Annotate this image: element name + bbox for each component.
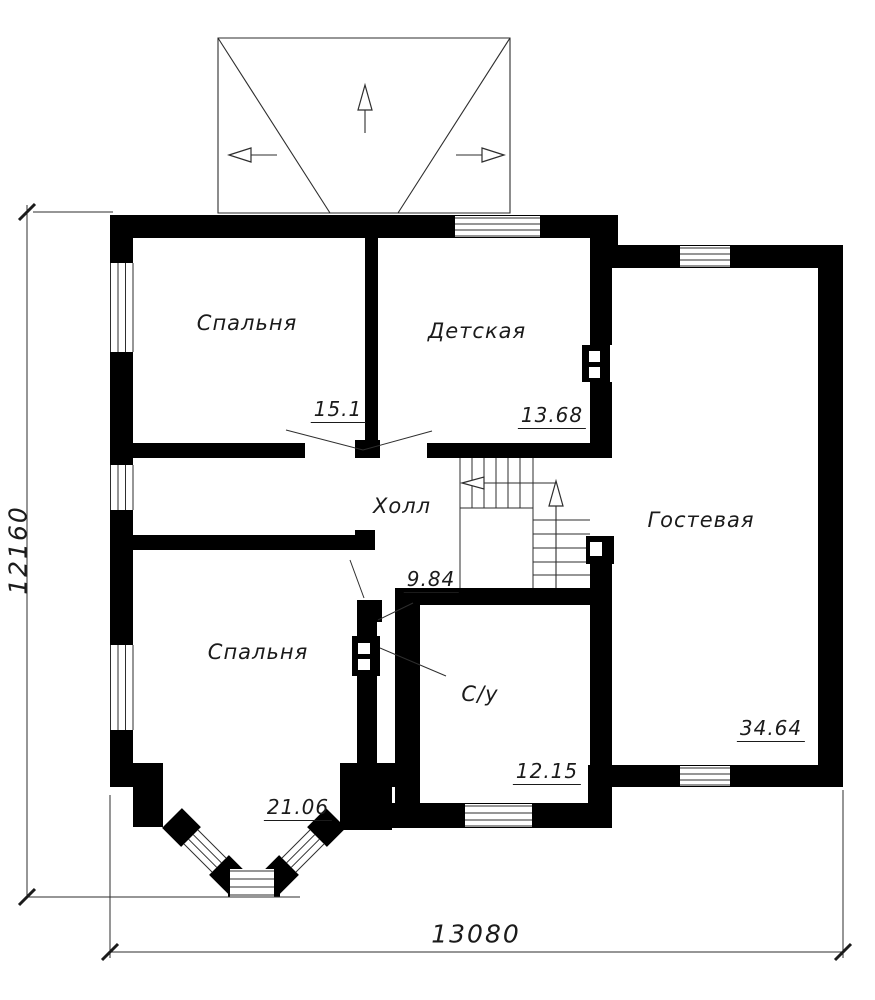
roof-arrow-right-icon — [456, 148, 504, 162]
window-bottom-guest — [680, 766, 730, 786]
roof-slope-arrows — [229, 85, 504, 162]
room-label-guest: Гостевая — [647, 508, 754, 532]
area-value-hall: 9.84 — [404, 567, 459, 593]
area-value-guest: 34.64 — [737, 716, 805, 742]
roof-arrow-up-icon — [358, 85, 372, 133]
window-left-hall — [108, 465, 135, 510]
staircase — [460, 458, 590, 588]
floor-plan-page: Спальня 15.1 Детская 13.68 Холл 9.84 Гос… — [0, 0, 875, 1000]
window-top-guest — [680, 246, 730, 267]
area-value-bedroom2: 21.06 — [264, 795, 332, 821]
dimension-text-vertical: 12160 — [4, 505, 33, 595]
door-frame-bedroom2 — [352, 636, 380, 676]
window-left-bedroom2 — [108, 645, 135, 730]
room-label-bedroom2: Спальня — [208, 640, 308, 664]
room-label-bedroom1: Спальня — [197, 311, 297, 335]
bay-window-center-window — [230, 869, 274, 898]
floor-plan-drawing — [0, 0, 875, 1000]
area-value-nursery: 13.68 — [518, 403, 586, 429]
room-label-nursery: Детская — [428, 319, 526, 343]
window-left-bedroom1 — [108, 263, 135, 352]
area-value-bedroom1: 15.1 — [311, 397, 366, 423]
room-label-hall: Холл — [373, 494, 431, 518]
roof-arrow-left-icon — [229, 148, 277, 162]
window-bottom-bathroom — [465, 804, 532, 827]
roof-outline — [218, 38, 510, 213]
bay-window-walls — [133, 763, 417, 886]
dimension-text-horizontal: 13080 — [431, 920, 521, 949]
area-value-bathroom: 12.15 — [513, 759, 581, 785]
interior-walls — [110, 238, 612, 828]
room-label-bathroom: С/у — [461, 682, 498, 706]
window-top-nursery — [455, 216, 540, 237]
door-frame-nursery-guest — [582, 345, 610, 382]
stair-direction-arrow-icon — [462, 477, 563, 588]
door-frame-stairs-guest — [586, 536, 614, 564]
